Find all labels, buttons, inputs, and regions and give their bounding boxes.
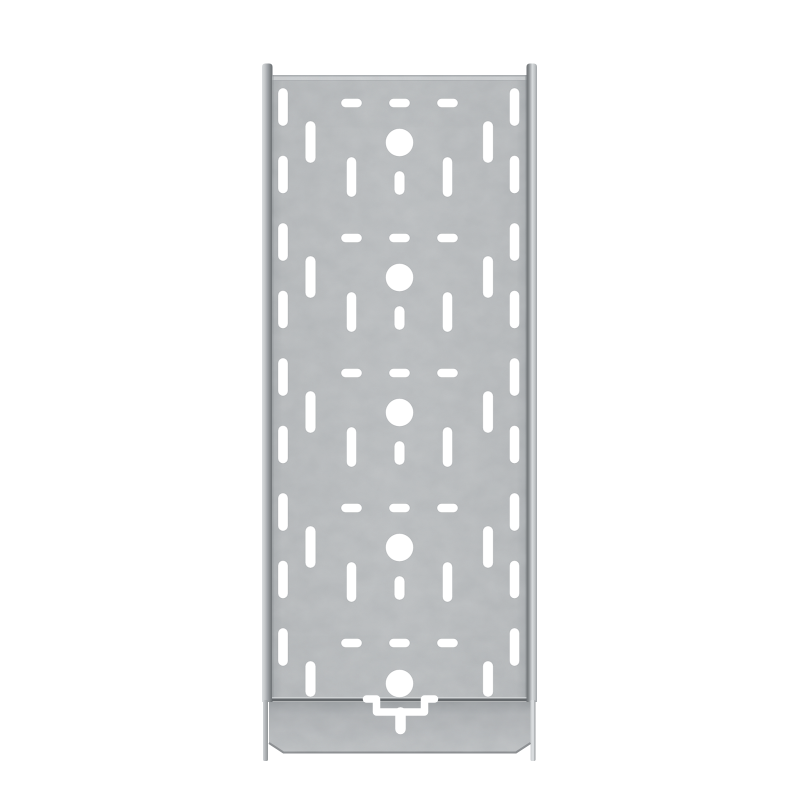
perforation-hole: [389, 234, 410, 243]
perforation-hole: [483, 391, 494, 433]
perforation-hole: [278, 493, 288, 531]
perforation-hole: [437, 99, 458, 108]
perforation-hole: [510, 156, 520, 194]
left-rail-tail: [263, 700, 268, 761]
perforation-hole: [510, 628, 520, 666]
perforation-hole: [389, 639, 410, 648]
perforation-hole: [305, 526, 316, 568]
tray-base-panel: [272, 75, 527, 699]
perforation-hole: [483, 121, 494, 163]
perforation-hole: [347, 157, 357, 197]
perforation-hole: [510, 358, 520, 396]
perforation-hole: [437, 504, 458, 513]
perforation-hole: [510, 88, 520, 126]
panel-top-edge-dark: [272, 75, 527, 77]
perforation-hole: [278, 291, 288, 329]
perforation-hole: [389, 504, 410, 513]
perforation-hole: [347, 562, 357, 602]
perforation-hole: [389, 99, 410, 108]
perforation-hole: [510, 561, 520, 599]
panel-right-inner-shadow: [525, 75, 527, 699]
right-side-rail: [527, 64, 538, 703]
perforation-hole: [386, 129, 414, 157]
perforation-hole: [443, 292, 453, 332]
perforation-hole: [483, 526, 494, 568]
perforation-hole: [305, 391, 316, 433]
perforation-hole: [389, 369, 410, 378]
photo-canvas: [0, 0, 800, 800]
perforation-hole: [510, 493, 520, 531]
perforation-hole: [278, 628, 288, 666]
perforation-hole: [510, 426, 520, 464]
perforation-hole: [341, 234, 362, 243]
perforation-hole: [278, 358, 288, 396]
overlap-shadow-line: [272, 699, 527, 702]
perforation-hole: [305, 661, 316, 697]
perforation-hole: [278, 223, 288, 261]
perforation-hole: [305, 256, 316, 298]
left-side-rail: [262, 64, 273, 703]
perforation-hole: [394, 441, 405, 465]
cable-tray-photo: [0, 0, 800, 800]
perforation-hole: [278, 156, 288, 194]
perforation-hole: [278, 88, 288, 126]
perforation-hole: [510, 223, 520, 261]
panel-left-inner-shadow: [272, 75, 274, 699]
perforation-hole: [437, 369, 458, 378]
perforation-hole: [394, 306, 405, 330]
perforation-hole: [341, 369, 362, 378]
perforation-hole: [386, 534, 414, 562]
perforation-hole: [278, 561, 288, 599]
perforation-hole: [483, 256, 494, 298]
perforation-hole: [443, 427, 453, 467]
perforation-hole: [386, 264, 414, 292]
perforation-hole: [305, 121, 316, 163]
perforation-hole: [510, 291, 520, 329]
perforation-hole: [437, 234, 458, 243]
perforation-hole: [394, 576, 405, 600]
perforation-hole: [443, 562, 453, 602]
panel-top-fold-highlight: [272, 77, 527, 81]
perforation-hole: [341, 639, 362, 648]
perforation-hole: [278, 426, 288, 464]
perforation-hole: [437, 639, 458, 648]
perforation-hole: [386, 670, 414, 698]
perforation-hole: [341, 504, 362, 513]
perforation-hole: [483, 661, 494, 697]
panel-top-fold-shadow: [272, 80, 527, 81]
perforation-hole: [341, 99, 362, 108]
perforation-hole: [443, 157, 453, 197]
right-rail-tail: [531, 700, 536, 761]
perforation-hole: [386, 399, 414, 427]
perforation-hole: [347, 292, 357, 332]
perforation-hole: [394, 171, 405, 195]
perforation-hole: [347, 427, 357, 467]
